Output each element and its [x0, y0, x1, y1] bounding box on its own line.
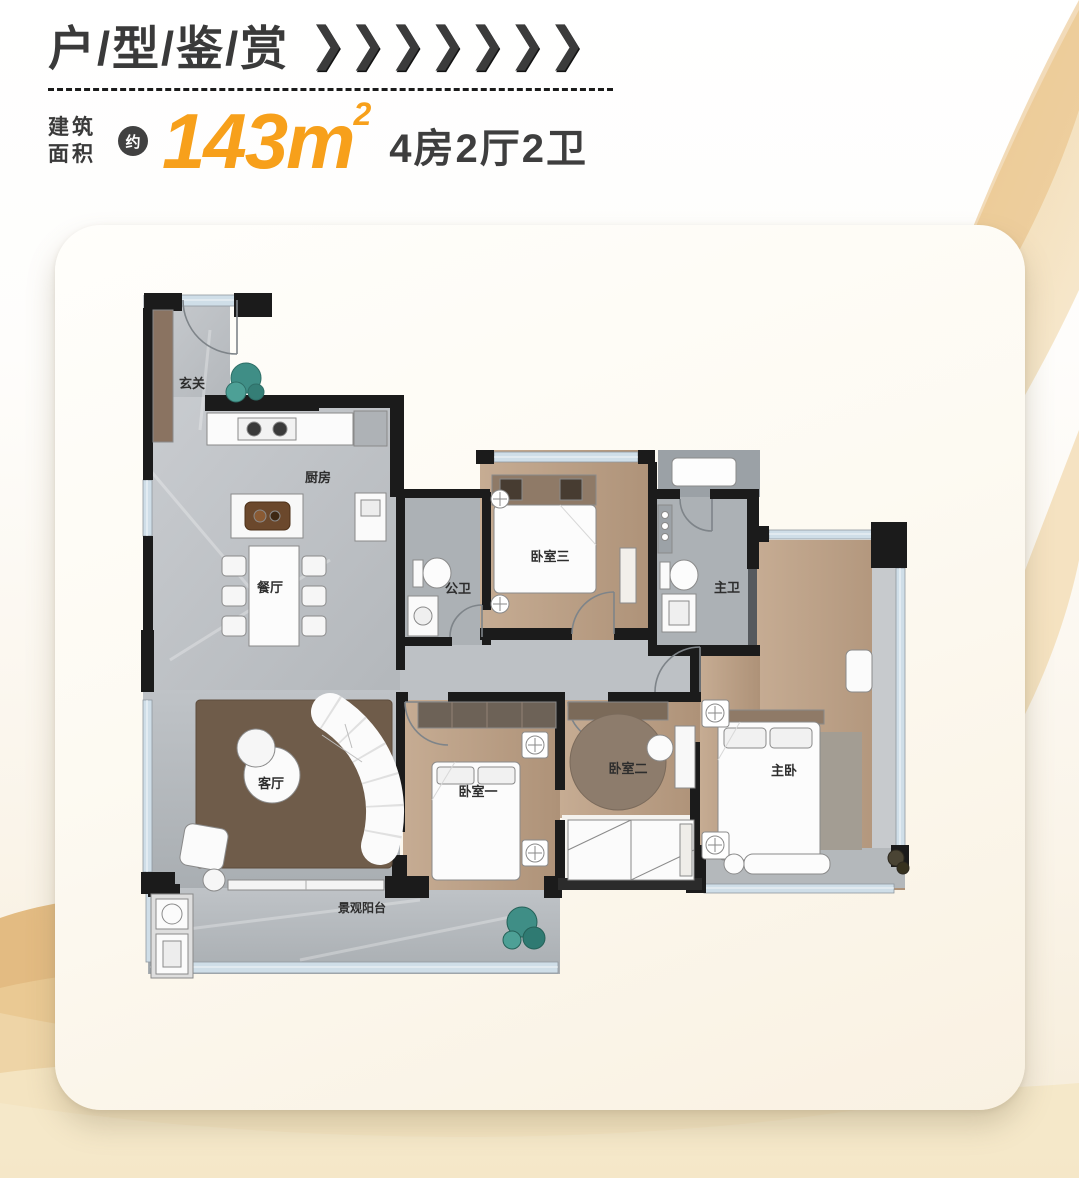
master-chaise [744, 854, 830, 874]
layout-spec: 4房2厅2卫 [389, 116, 588, 174]
bedroom2-wardrobe [568, 820, 694, 880]
area-row: 建筑 面积 约 143m2 4房2厅2卫 [48, 105, 613, 177]
master-bath-toilet [670, 560, 698, 590]
header: 户/型/鉴/赏 ❯❯❯❯❯❯❯ 建筑 面积 约 143m2 4房2厅2卫 [48, 10, 613, 177]
public-bath-toilet-tank [413, 560, 423, 587]
bedroom3-dresser [620, 548, 636, 603]
master-chair [846, 650, 872, 692]
bedroom2-desk [675, 726, 695, 788]
dashed-divider [48, 88, 613, 91]
coffee-table-small [237, 729, 275, 767]
area-value: 143m2 [162, 102, 371, 180]
label-balcony: 景观阳台 [338, 900, 386, 915]
label-living: 客厅 [258, 776, 284, 791]
bedroom2-table [647, 735, 673, 761]
kitchen-fridge [354, 411, 387, 446]
area-superscript: 2 [354, 98, 372, 130]
label-master-bath: 主卫 [714, 580, 740, 595]
entry-plant [226, 363, 264, 402]
label-entrance: 玄关 [179, 376, 205, 391]
title-row: 户/型/鉴/赏 ❯❯❯❯❯❯❯ [48, 10, 613, 79]
ac-unit [672, 458, 736, 486]
label-bedroom-2: 卧室二 [608, 761, 647, 776]
floorplan-card: 玄关 厨房 餐厅 公卫 卧室三 主卫 客厅 卧室一 卧室二 主卧 景观阳台 [55, 225, 1025, 1110]
page-title: 户/型/鉴/赏 [48, 10, 289, 79]
label-master-bedroom: 主卧 [771, 763, 797, 778]
chevrons-decoration: ❯❯❯❯❯❯❯ [309, 21, 588, 67]
area-label-line2: 面积 [48, 141, 96, 168]
approx-badge: 约 [118, 126, 148, 156]
area-label: 建筑 面积 [48, 114, 96, 168]
label-dining: 餐厅 [256, 580, 283, 595]
master-bath-toilet-tank [660, 562, 670, 589]
living-side-table [203, 869, 225, 891]
floorplan: 玄关 厨房 餐厅 公卫 卧室三 主卫 客厅 卧室一 卧室二 主卧 景观阳台 [140, 285, 930, 995]
label-kitchen: 厨房 [305, 470, 331, 485]
dining-table [249, 546, 299, 646]
label-bedroom-1: 卧室一 [458, 784, 497, 799]
island-tray [245, 502, 290, 530]
living-armchair [179, 822, 230, 871]
entry-closet [153, 310, 173, 442]
label-public-bath: 公卫 [445, 581, 471, 596]
area-number: 143m [162, 102, 354, 180]
label-bedroom-3: 卧室三 [530, 549, 569, 564]
area-label-line1: 建筑 [48, 114, 96, 141]
